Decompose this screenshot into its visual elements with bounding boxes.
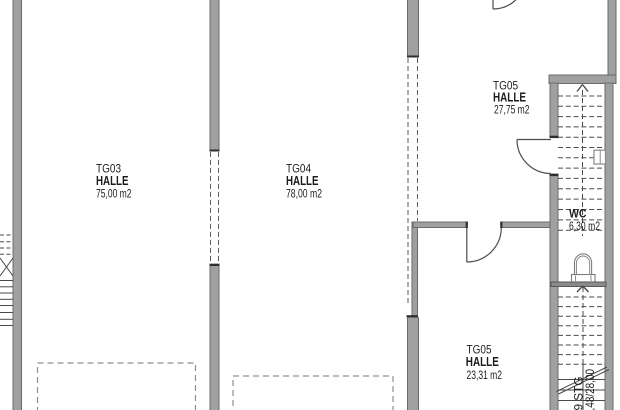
svg-text:27,75 m2: 27,75 m2 bbox=[494, 105, 530, 117]
svg-text:23,31 m2: 23,31 m2 bbox=[467, 370, 503, 382]
svg-text:HALLE: HALLE bbox=[466, 355, 499, 369]
svg-text:78,00 m2: 78,00 m2 bbox=[286, 189, 322, 201]
svg-text:HALLE: HALLE bbox=[286, 174, 319, 188]
svg-text:HALLE: HALLE bbox=[493, 91, 526, 105]
svg-text:6,48/28,00: 6,48/28,00 bbox=[583, 369, 597, 410]
svg-text:6,30 m2: 6,30 m2 bbox=[569, 221, 600, 233]
svg-text:WC: WC bbox=[569, 207, 587, 221]
svg-text:75,00 m2: 75,00 m2 bbox=[96, 189, 132, 201]
svg-text:HALLE: HALLE bbox=[96, 174, 129, 188]
